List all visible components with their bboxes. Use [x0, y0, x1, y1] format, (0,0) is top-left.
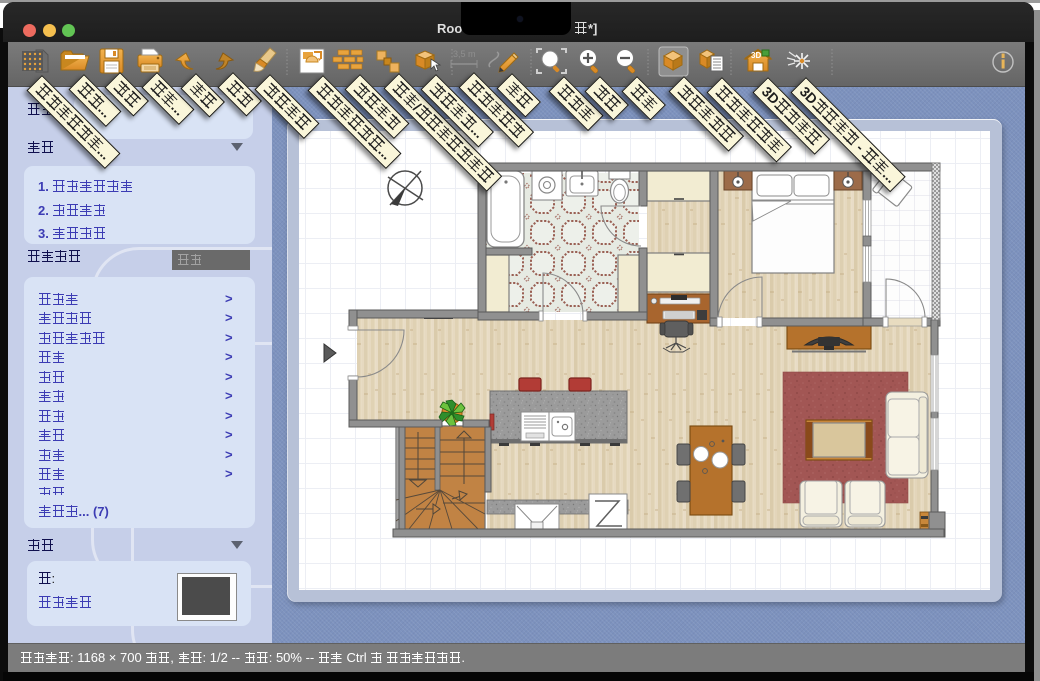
svg-text:3,5 m: 3,5 m — [453, 49, 476, 59]
svg-text:3D: 3D — [751, 51, 761, 60]
